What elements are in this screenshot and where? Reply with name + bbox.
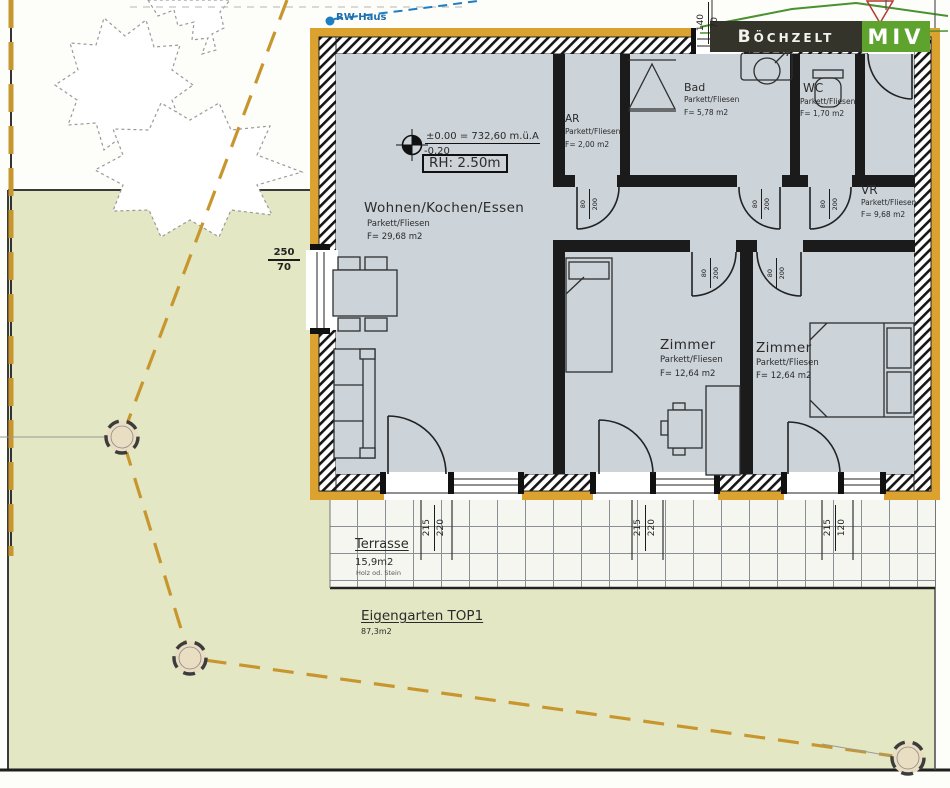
terrasse-material: Holz od. Stein bbox=[356, 570, 401, 577]
terrasse-title: Terrasse bbox=[355, 538, 409, 552]
logo-division: MIV bbox=[868, 25, 925, 49]
terrasse-area: 15,9m2 bbox=[355, 557, 393, 568]
room-area-ar: F= 2,00 m2 bbox=[565, 141, 609, 149]
dim-top-window: 140 70 bbox=[697, 2, 720, 44]
eigengarten-title: Eigengarten TOP1 bbox=[361, 609, 483, 624]
logo-name: Böchzelt bbox=[738, 27, 835, 47]
rw-point-icon bbox=[326, 17, 335, 26]
dim-door-wc: 80200 bbox=[820, 189, 838, 219]
dining-table bbox=[333, 257, 397, 331]
room-area-wohnen: F= 29,68 m2 bbox=[367, 233, 422, 242]
room-floor-wc: Parkett/Fliesen bbox=[800, 98, 855, 106]
dim-door-zimmer1: 80200 bbox=[701, 258, 719, 288]
room-floor-wohnen: Parkett/Fliesen bbox=[367, 220, 430, 229]
dim-door-bad: 80200 bbox=[752, 189, 770, 219]
room-area-zimmer1: F= 12,64 m2 bbox=[660, 370, 715, 379]
survey-point-1 bbox=[106, 421, 138, 453]
room-label-ar: AR bbox=[565, 114, 579, 126]
room-floor-bad: Parkett/Fliesen bbox=[684, 96, 739, 104]
eigengarten-area: 87,3m2 bbox=[361, 628, 392, 637]
room-area-zimmer2: F= 12,64 m2 bbox=[756, 372, 811, 381]
room-area-wc: F= 1,70 m2 bbox=[800, 110, 844, 118]
room-floor-zimmer1: Parkett/Fliesen bbox=[660, 356, 723, 365]
dim-bottom-2: 215220 bbox=[634, 505, 657, 551]
bed-single bbox=[566, 258, 612, 372]
logo-name-box: Böchzelt bbox=[710, 21, 862, 52]
room-area-vr: F= 9,68 m2 bbox=[861, 211, 905, 219]
dim-door-ar: 80200 bbox=[580, 189, 598, 219]
dim-bottom-1: 215220 bbox=[423, 505, 446, 551]
survey-point-3 bbox=[892, 742, 924, 774]
dim-door-zimmer2: 80200 bbox=[767, 258, 785, 288]
room-label-vr: VR bbox=[861, 184, 878, 197]
dim-left-window: 250 70 bbox=[268, 247, 300, 273]
wardrobe bbox=[706, 386, 740, 475]
room-label-wohnen: Wohnen/Kochen/Essen bbox=[364, 201, 524, 216]
room-label-wc: WC bbox=[803, 82, 823, 95]
survey-point-2 bbox=[174, 642, 206, 674]
room-label-bad: Bad bbox=[684, 82, 705, 94]
room-area-bad: F= 5,78 m2 bbox=[684, 109, 728, 117]
room-height-box: RH: 2.50m bbox=[422, 154, 508, 173]
room-floor-zimmer2: Parkett/Fliesen bbox=[756, 359, 819, 368]
dim-bottom-3: 215120 bbox=[824, 505, 847, 551]
sofa bbox=[334, 349, 375, 458]
floor-plan-page: RW Haus Böchzelt MIV 140 70 ±0.00 = 732,… bbox=[0, 0, 950, 788]
level-upper: ±0.00 = 732,60 m.ü.A bbox=[426, 131, 539, 142]
room-floor-vr: Parkett/Fliesen bbox=[861, 199, 916, 207]
rw-haus-label: RW Haus bbox=[336, 12, 386, 23]
bed-double bbox=[810, 323, 914, 417]
logo-division-box: MIV bbox=[862, 21, 930, 52]
room-label-zimmer2: Zimmer bbox=[756, 341, 812, 356]
room-floor-ar: Parkett/Fliesen bbox=[565, 128, 620, 136]
room-label-zimmer1: Zimmer bbox=[660, 338, 716, 353]
